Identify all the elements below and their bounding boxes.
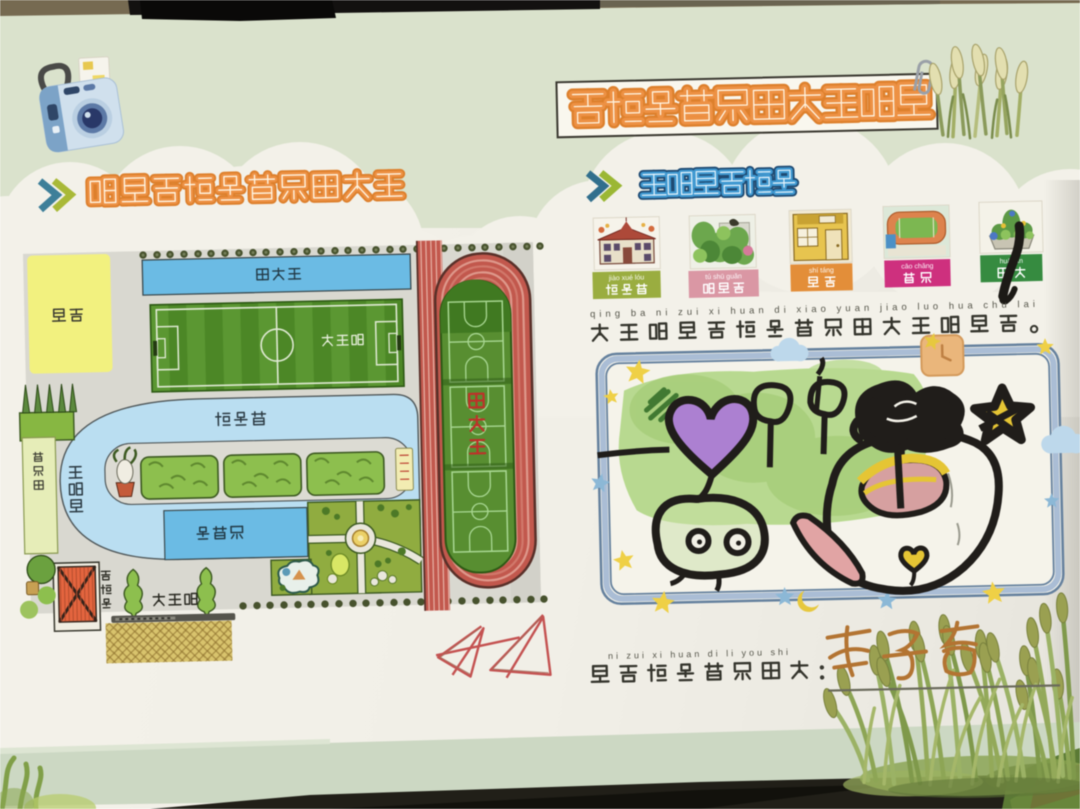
svg-text:tú shū guǎn: tú shū guǎn [705,273,742,281]
svg-text:cāo chǎng: cāo chǎng [901,263,934,271]
svg-text:shí táng: shí táng [809,267,834,275]
svg-text:jiào xué lóu: jiào xué lóu [608,274,645,282]
